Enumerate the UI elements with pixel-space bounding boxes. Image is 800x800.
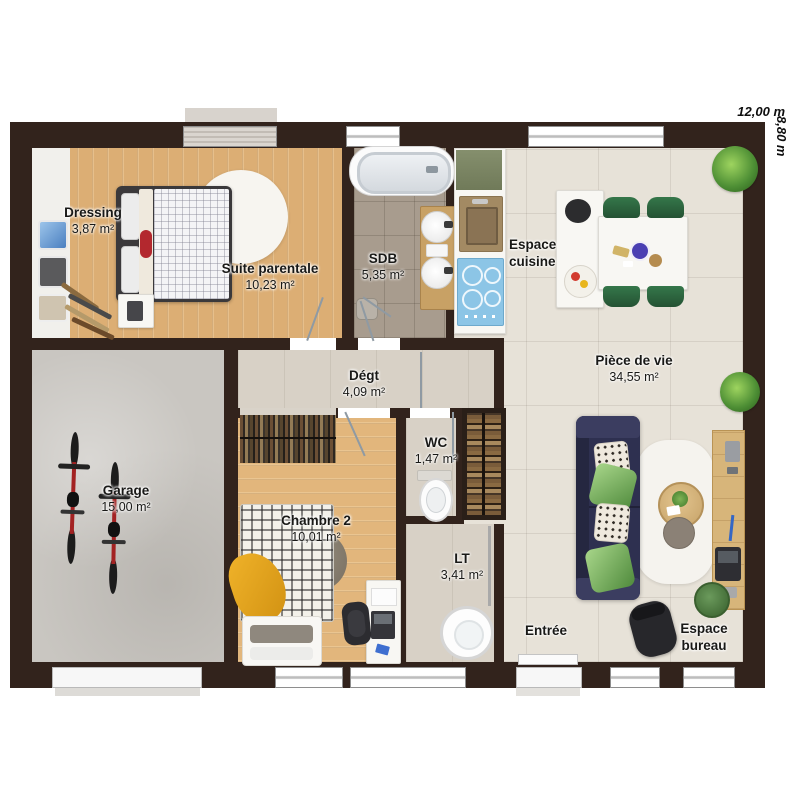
wardrobe-shelf	[240, 408, 336, 415]
room-name: LT	[427, 551, 497, 568]
room-area: 15,00 m²	[71, 500, 181, 515]
bike-pedals	[102, 540, 126, 544]
nightstand	[118, 294, 154, 328]
machine-drum	[454, 620, 484, 650]
desk-chair	[341, 601, 372, 647]
garage-door	[52, 667, 202, 688]
plant-icon	[720, 372, 760, 412]
entry-step	[516, 688, 580, 696]
room-area: 5,35 m²	[343, 268, 423, 283]
wall-mid-b	[336, 338, 358, 350]
room-name: Dégt	[319, 368, 409, 385]
pillow-white	[250, 647, 313, 660]
notebook-blue	[375, 643, 390, 655]
cooktop	[457, 258, 504, 326]
bicycle	[95, 462, 133, 595]
wall-lt-right	[494, 524, 504, 662]
napkin	[623, 261, 633, 267]
clothes-rack	[58, 286, 120, 342]
cooktop-knobs	[465, 315, 495, 318]
nightstand-item	[127, 301, 143, 321]
pillow	[121, 246, 140, 293]
plant-icon	[712, 146, 758, 192]
counter-olive-top	[456, 150, 502, 190]
wall-chambre2-top-b	[390, 408, 410, 418]
room-label-wc: WC 1,47 m²	[401, 435, 471, 467]
pillow-leopard	[593, 503, 630, 544]
room-name: Dressing	[48, 205, 138, 222]
room-label-piece-de-vie: Pièce de vie 34,55 m²	[569, 353, 699, 385]
laptop-screen	[374, 614, 392, 624]
room-label-garage: Garage 15,00 m²	[71, 483, 181, 515]
entry-door-leaf	[518, 654, 578, 665]
room-area: 1,47 m²	[401, 452, 471, 467]
sink-faucet	[472, 199, 488, 204]
burner	[484, 290, 501, 307]
toilet	[419, 478, 453, 522]
room-name: Espace cuisine	[509, 237, 573, 271]
window-desk-bottom	[350, 667, 466, 688]
entry-door	[516, 667, 582, 688]
stool-green	[694, 582, 730, 618]
burner	[462, 289, 483, 310]
sofa-armrest	[576, 416, 640, 438]
table-runner-gold	[612, 245, 630, 258]
red-throw	[140, 230, 152, 258]
dimension-height-label: 8,80 m	[774, 116, 789, 186]
sink-basin	[466, 207, 498, 245]
bike-seat	[108, 522, 120, 537]
window-living-bottom-2	[683, 667, 735, 688]
room-name: Garage	[71, 483, 181, 500]
room-label-espace-bureau: Espace bureau	[667, 621, 741, 655]
window-chambre2-bottom	[275, 667, 343, 688]
teapot	[565, 199, 591, 223]
floor-plan: Dressing 3,87 m² Suite parentale 10,23 m…	[0, 0, 800, 800]
dining-chair	[647, 197, 684, 218]
dining-chair	[603, 286, 640, 307]
bike-handlebar	[58, 463, 90, 469]
room-name: SDB	[343, 251, 423, 268]
room-name: Pièce de vie	[569, 353, 699, 370]
room-area: 3,87 m²	[48, 222, 138, 237]
soap-tray	[426, 244, 448, 257]
dining-table	[598, 216, 688, 290]
room-area: 4,09 m²	[319, 385, 409, 400]
fruit-yellow	[580, 280, 588, 288]
room-area: 3,41 m²	[427, 568, 497, 583]
dining-chair	[647, 286, 684, 307]
phone	[727, 467, 738, 474]
burner	[484, 267, 501, 284]
plate-tan	[649, 254, 662, 267]
dining-chair	[603, 197, 640, 218]
wardrobe-clothes	[240, 415, 336, 463]
room-label-chambre-2: Chambre 2 10,01 m²	[256, 513, 376, 545]
wall-mid-c	[400, 338, 504, 350]
window-suite-top	[183, 126, 277, 147]
room-label-sdb: SDB 5,35 m²	[343, 251, 423, 283]
burner	[462, 265, 483, 286]
tablet	[725, 441, 740, 462]
room-area: 10,23 m²	[195, 278, 345, 293]
pouf	[663, 517, 695, 549]
pillow-green	[584, 542, 636, 594]
garage-apron	[55, 688, 200, 696]
basin-faucet	[444, 221, 453, 228]
room-area: 10,01 m²	[256, 530, 376, 545]
table-plant-icon	[672, 491, 688, 507]
bathtub-basin	[357, 152, 451, 194]
window-living-bottom-1	[610, 667, 660, 688]
fruit-red	[571, 272, 580, 281]
laptop-screen	[718, 551, 738, 563]
wall-degt-right	[494, 350, 504, 408]
table-card	[666, 505, 680, 516]
room-label-degt: Dégt 4,09 m²	[319, 368, 409, 400]
room-label-entree: Entrée	[501, 623, 591, 640]
outer-wall-left	[10, 122, 32, 688]
room-label-dressing: Dressing 3,87 m²	[48, 205, 138, 237]
room-name: Espace bureau	[667, 621, 741, 655]
wardrobe-rail	[240, 437, 336, 439]
washing-machine	[440, 606, 494, 660]
wall-garage-chambre2	[224, 350, 238, 662]
bed-2-foot	[242, 616, 322, 666]
room-area: 34,55 m²	[569, 370, 699, 385]
room-label-espace-cuisine: Espace cuisine	[509, 237, 573, 271]
door-degt	[420, 352, 422, 408]
dimension-width-label: 12,00 m	[695, 104, 785, 119]
papers	[371, 588, 397, 606]
room-name: WC	[401, 435, 471, 452]
toilet-bowl	[426, 487, 446, 513]
window-sdb-top	[346, 126, 400, 147]
bathtub	[349, 146, 455, 196]
room-name: Suite parentale	[195, 261, 345, 278]
pen-blue	[729, 515, 735, 541]
room-label-lt: LT 3,41 m²	[427, 551, 497, 583]
room-name: Chambre 2	[256, 513, 376, 530]
rack-item	[68, 293, 113, 320]
closet-rail	[482, 413, 485, 515]
basin-faucet	[444, 267, 453, 274]
plate-blue	[630, 241, 650, 261]
chair-seat	[347, 609, 367, 638]
student-desk	[366, 580, 401, 664]
window-living-top	[528, 126, 664, 147]
bathtub-faucet	[426, 166, 438, 173]
kitchen-sink	[459, 196, 503, 252]
room-label-suite-parentale: Suite parentale 10,23 m²	[195, 261, 345, 293]
room-name: Entrée	[501, 623, 591, 640]
pillow-gray	[250, 625, 313, 643]
